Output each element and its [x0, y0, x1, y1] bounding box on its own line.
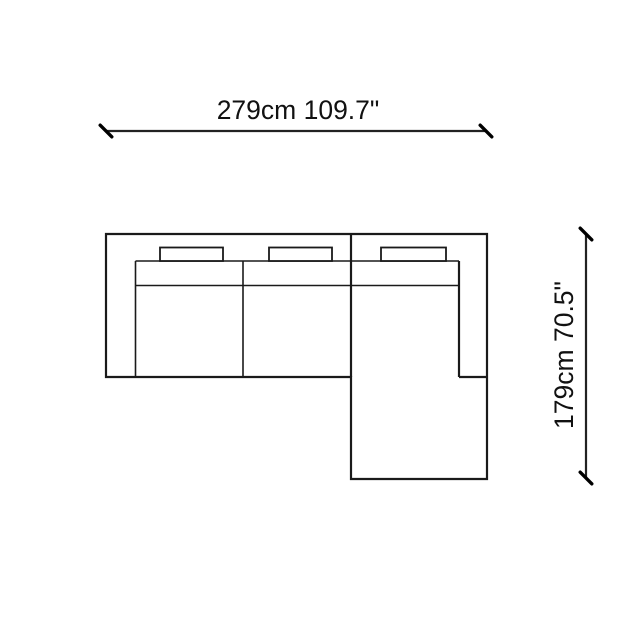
- svg-text:279cm 109.7": 279cm 109.7": [217, 95, 380, 125]
- svg-text:179cm 70.5": 179cm 70.5": [549, 281, 579, 429]
